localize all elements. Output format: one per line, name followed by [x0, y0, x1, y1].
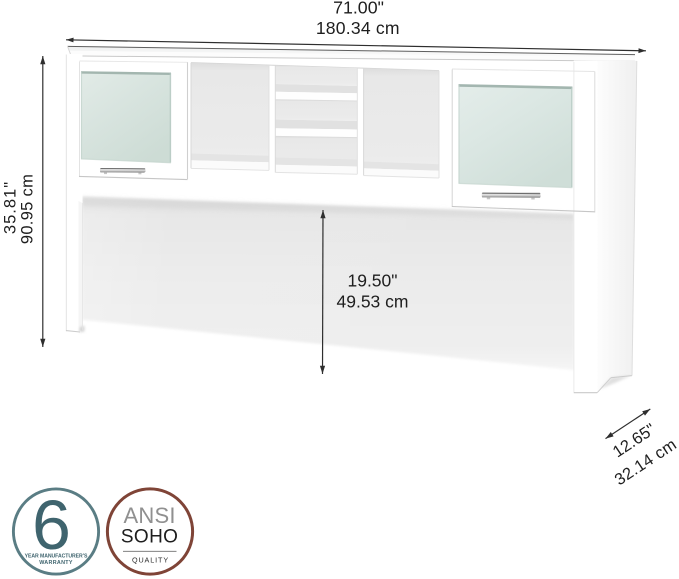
svg-text:SOHO: SOHO: [121, 526, 179, 547]
svg-text:WARRANTY: WARRANTY: [39, 560, 73, 566]
svg-text:19.50": 19.50": [347, 271, 397, 291]
svg-text:35.81": 35.81": [2, 181, 20, 234]
svg-text:6: 6: [32, 486, 71, 564]
svg-text:180.34 cm: 180.34 cm: [316, 18, 400, 38]
svg-text:YEAR MANUFACTURER’S: YEAR MANUFACTURER’S: [25, 554, 88, 560]
svg-text:ANSI: ANSI: [124, 503, 176, 528]
svg-text:71.00": 71.00": [333, 0, 384, 18]
svg-text:QUALITY: QUALITY: [132, 556, 169, 565]
svg-text:90.95 cm: 90.95 cm: [19, 174, 37, 244]
svg-text:49.53 cm: 49.53 cm: [337, 292, 409, 312]
